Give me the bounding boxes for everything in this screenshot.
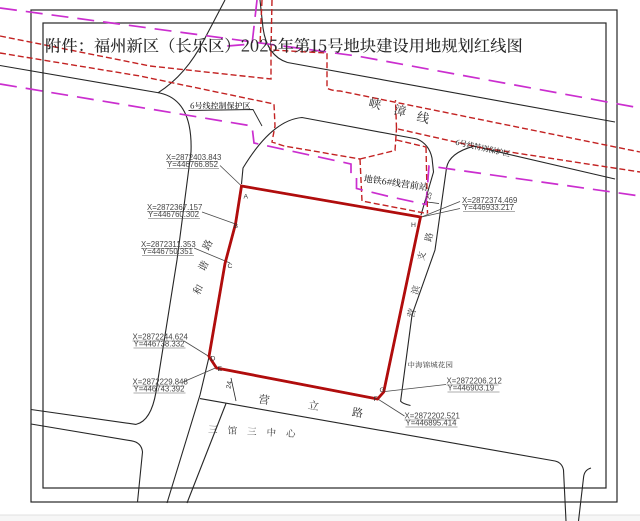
svg-text:24: 24 <box>226 380 234 389</box>
svg-text:G: G <box>380 387 385 394</box>
svg-text:Y=446933.217: Y=446933.217 <box>463 203 514 212</box>
svg-text:Y=446766.852: Y=446766.852 <box>167 160 218 169</box>
svg-text:F: F <box>374 396 378 403</box>
svg-text:Y=446760.302: Y=446760.302 <box>148 210 199 219</box>
svg-text:E: E <box>218 366 223 373</box>
svg-text:Y=446895.414: Y=446895.414 <box>406 419 458 428</box>
svg-text:Y=446903.19: Y=446903.19 <box>448 384 495 393</box>
svg-text:Y=446750.351: Y=446750.351 <box>142 247 193 256</box>
svg-text:B: B <box>234 223 239 230</box>
svg-text:A: A <box>244 194 249 201</box>
svg-text:D: D <box>211 356 216 363</box>
svg-text:Y=446738.332: Y=446738.332 <box>134 340 185 349</box>
svg-text:C: C <box>228 263 233 270</box>
svg-text:H: H <box>411 222 416 229</box>
svg-text:Y=446743.392: Y=446743.392 <box>134 385 185 394</box>
